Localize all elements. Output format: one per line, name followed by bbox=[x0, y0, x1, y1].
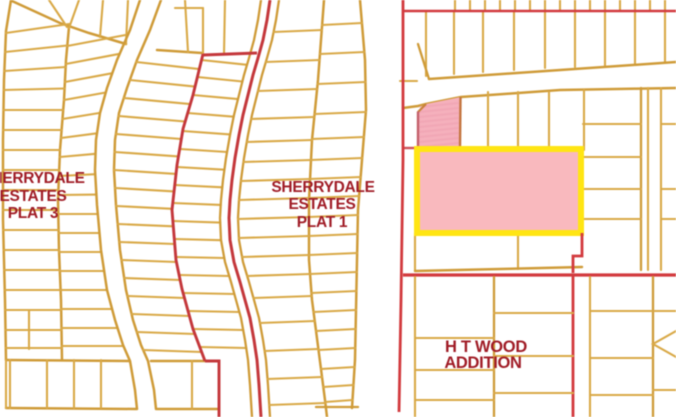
svg-text:ESTATES: ESTATES bbox=[0, 188, 67, 205]
svg-text:SHERRYDALE: SHERRYDALE bbox=[0, 170, 85, 187]
svg-text:ADDITION: ADDITION bbox=[444, 354, 521, 372]
svg-text:SHERRYDALE: SHERRYDALE bbox=[271, 179, 374, 196]
svg-text:PLAT 3: PLAT 3 bbox=[8, 205, 59, 222]
svg-text:ESTATES: ESTATES bbox=[288, 196, 355, 213]
svg-text:PLAT 1: PLAT 1 bbox=[297, 214, 348, 231]
